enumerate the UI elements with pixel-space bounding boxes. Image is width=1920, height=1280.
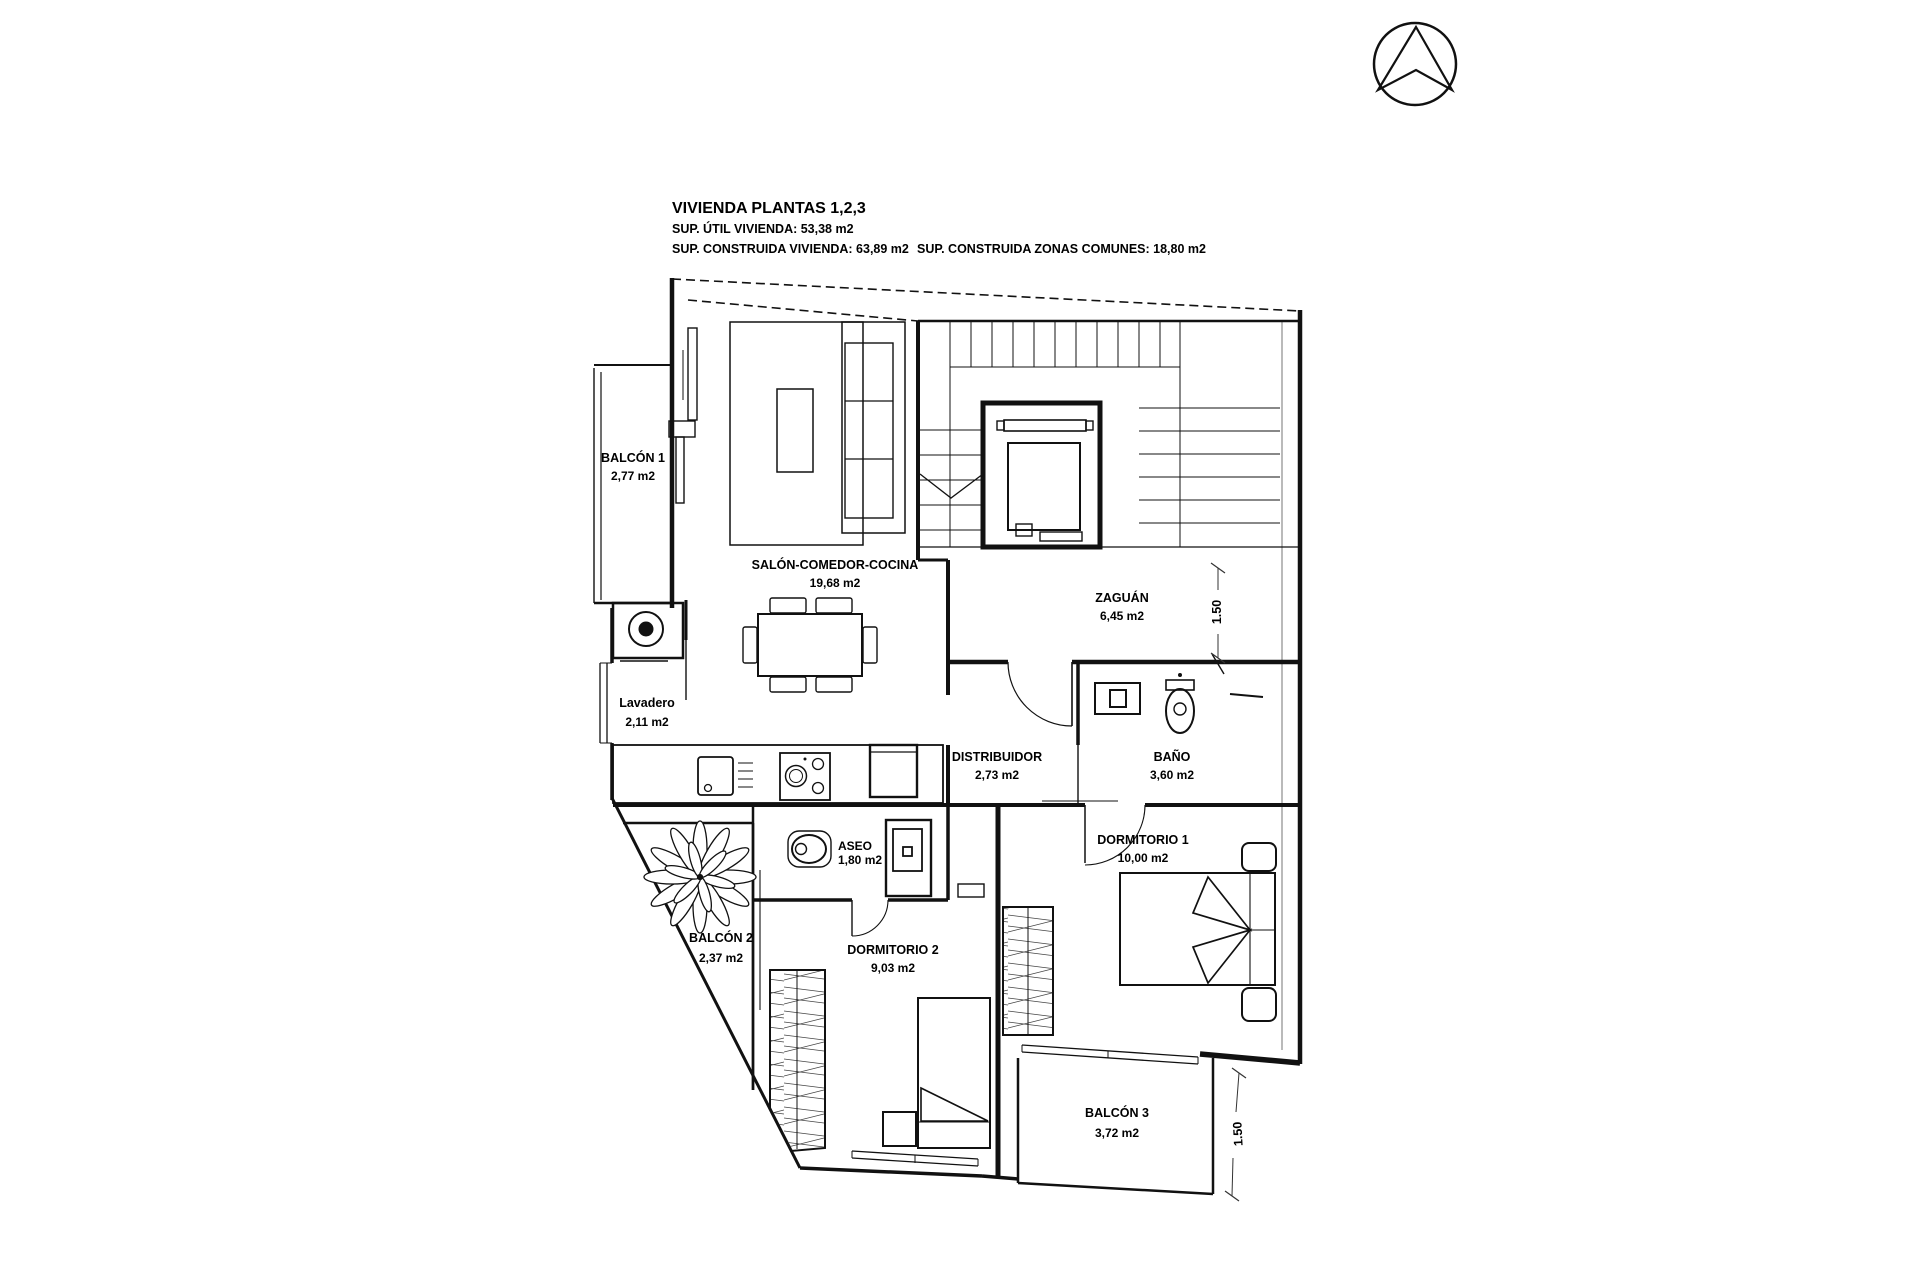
stair-direction-arrow	[920, 474, 983, 498]
living-room-furniture	[683, 322, 905, 545]
elevator-shaft	[983, 403, 1100, 547]
room-name-zaguan: ZAGUÁN	[1095, 590, 1148, 605]
room-name-balcon-3: BALCÓN 3	[1085, 1105, 1149, 1120]
nightstand	[883, 1112, 916, 1146]
sliding-door-leaf	[676, 437, 684, 503]
elevator-beam	[1004, 420, 1086, 431]
room-area-aseo: 1,80 m2	[838, 853, 882, 867]
pillow	[1193, 930, 1250, 983]
room-name-lavadero: Lavadero	[619, 696, 675, 710]
entrance-door-swing	[1008, 662, 1072, 726]
kitchen-sink	[698, 757, 733, 795]
chair	[770, 677, 806, 692]
room-name-balcon-1: BALCÓN 1	[601, 450, 665, 465]
room-name-balcon-2: BALCÓN 2	[689, 930, 753, 945]
room-area-distribuidor: 2,73 m2	[975, 768, 1019, 782]
dimension-line-hall: 1.50	[1210, 563, 1225, 663]
chair	[743, 627, 757, 663]
dining-table	[758, 614, 862, 676]
kitchen	[613, 745, 943, 803]
door-leaf	[958, 884, 984, 897]
elevator-cab	[1008, 443, 1080, 530]
burner-large	[786, 766, 807, 787]
plan-title: VIVIENDA PLANTAS 1,2,3	[672, 200, 866, 217]
floor-plan-page: VIVIENDA PLANTAS 1,2,3 SUP. ÚTIL VIVIEND…	[0, 0, 1920, 1280]
floor-plan-drawing: VIVIENDA PLANTAS 1,2,3 SUP. ÚTIL VIVIEND…	[0, 0, 1920, 1280]
room-area-balcon-3: 3,72 m2	[1095, 1126, 1139, 1140]
sup-construida: SUP. CONSTRUIDA VIVIENDA: 63,89 m2	[672, 242, 909, 256]
tv-unit	[688, 328, 697, 420]
sup-zonas-comunes: SUP. CONSTRUIDA ZONAS COMUNES: 18,80 m2	[917, 242, 1206, 256]
nightstand	[1242, 843, 1276, 871]
plant	[644, 821, 756, 933]
single-bed	[918, 998, 990, 1148]
bedroom-2	[770, 884, 990, 1166]
pillow	[1193, 877, 1250, 930]
sofa	[842, 322, 905, 533]
sup-util: SUP. ÚTIL VIVIENDA: 53,38 m2	[672, 221, 854, 236]
chair	[816, 677, 852, 692]
burner-small	[813, 759, 824, 770]
room-area-salon: 19,68 m2	[810, 576, 861, 590]
dim-label-hall: 1.50	[1210, 600, 1224, 624]
window-to-balcony-3	[1022, 1045, 1198, 1064]
shower-drain	[903, 847, 912, 856]
window-bedroom-2	[852, 1151, 978, 1166]
room-name-distribuidor: DISTRIBUIDOR	[952, 750, 1042, 764]
toilet	[1166, 689, 1194, 733]
interior-walls	[613, 321, 1300, 1176]
kitchen-counter	[613, 745, 943, 803]
room-labels: BALCÓN 1 2,77 m2 SALÓN-COMEDOR-COCINA 19…	[601, 450, 1194, 1140]
washing-machine-door	[639, 622, 654, 637]
chair	[816, 598, 852, 613]
bathroom	[1042, 673, 1263, 803]
toilet	[792, 835, 826, 863]
room-area-zaguan: 6,45 m2	[1100, 609, 1144, 623]
room-name-dormitorio-1: DORMITORIO 1	[1097, 833, 1188, 847]
bathroom-sink	[1095, 683, 1140, 714]
outer-walls	[612, 278, 1300, 1179]
toilet-room	[788, 820, 931, 936]
room-area-bano: 3,60 m2	[1150, 768, 1194, 782]
chair	[863, 627, 877, 663]
towel-rail	[1230, 694, 1263, 697]
rug	[730, 322, 863, 545]
room-area-dormitorio-2: 9,03 m2	[871, 961, 915, 975]
roof-overhang-lines	[672, 279, 1300, 321]
pillow	[921, 1088, 988, 1121]
dining-table-set	[743, 598, 877, 692]
coffee-table	[777, 389, 813, 472]
room-name-bano: BAÑO	[1154, 749, 1191, 764]
door-swing	[852, 900, 888, 936]
room-area-dormitorio-1: 10,00 m2	[1118, 851, 1169, 865]
north-compass-icon	[1374, 23, 1456, 105]
nightstand	[1242, 988, 1276, 1021]
chair	[770, 598, 806, 613]
dimension-line-balcony-3: 1.50	[1225, 1068, 1246, 1201]
room-name-dormitorio-2: DORMITORIO 2	[847, 943, 938, 957]
sink-drain	[705, 785, 712, 792]
fridge	[870, 745, 917, 797]
balcony-1	[594, 365, 695, 603]
dim-label-balcony-3: 1.50	[1230, 1121, 1245, 1146]
staircase	[920, 322, 1300, 547]
room-area-balcon-1: 2,77 m2	[611, 469, 655, 483]
room-name-aseo: ASEO	[838, 839, 872, 853]
title-block: VIVIENDA PLANTAS 1,2,3 SUP. ÚTIL VIVIEND…	[672, 200, 1206, 256]
room-name-salon: SALÓN-COMEDOR-COCINA	[752, 557, 919, 572]
burner-small	[813, 783, 824, 794]
elevator	[983, 403, 1100, 547]
room-area-balcon-2: 2,37 m2	[699, 951, 743, 965]
room-area-lavadero: 2,11 m2	[625, 715, 669, 729]
